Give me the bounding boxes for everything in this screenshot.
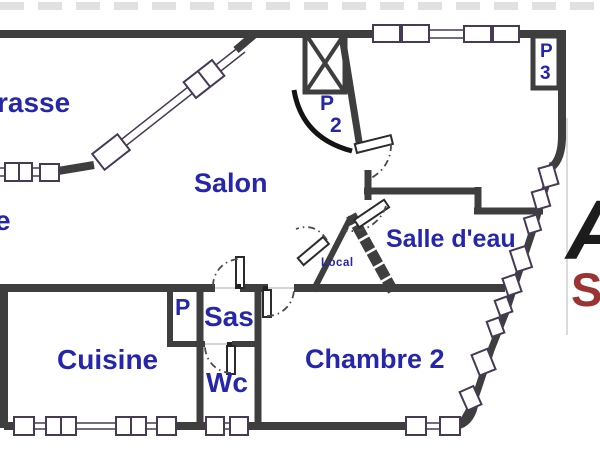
- salon-label: Salon: [194, 170, 268, 197]
- sas-label: Sas: [204, 303, 254, 331]
- door-p3-label: P 3: [540, 41, 553, 85]
- left-edge-label-partial: e: [0, 207, 11, 235]
- door-p3-letter: P: [540, 41, 553, 63]
- door-p2-label: P 2: [320, 93, 342, 137]
- door-p2-number: 2: [330, 115, 342, 137]
- salle-deau-label: Salle d'eau: [386, 227, 516, 252]
- shaft-cross-box: [305, 34, 345, 92]
- floor-plan: rasse e Salon P 2 P 3 Salle d'eau Local …: [0, 0, 600, 450]
- chambre2-label: Chambre 2: [305, 346, 445, 373]
- left-window-boxes: [5, 163, 59, 181]
- closet-p-label: P: [175, 296, 190, 319]
- door-p2-letter: P: [320, 93, 342, 115]
- door-p3-number: 3: [540, 63, 553, 85]
- wc-label: Wc: [206, 369, 248, 397]
- terrasse-label-partial: rasse: [0, 89, 70, 117]
- watermark-letter-a: A: [566, 188, 600, 272]
- watermark-letter-s: S: [571, 266, 600, 313]
- cuisine-label: Cuisine: [57, 346, 158, 374]
- terrace-glazing: [108, 46, 245, 156]
- local-label: Local: [321, 258, 354, 270]
- terrace-window-boxes: [92, 60, 224, 170]
- top-window-band: [373, 25, 519, 42]
